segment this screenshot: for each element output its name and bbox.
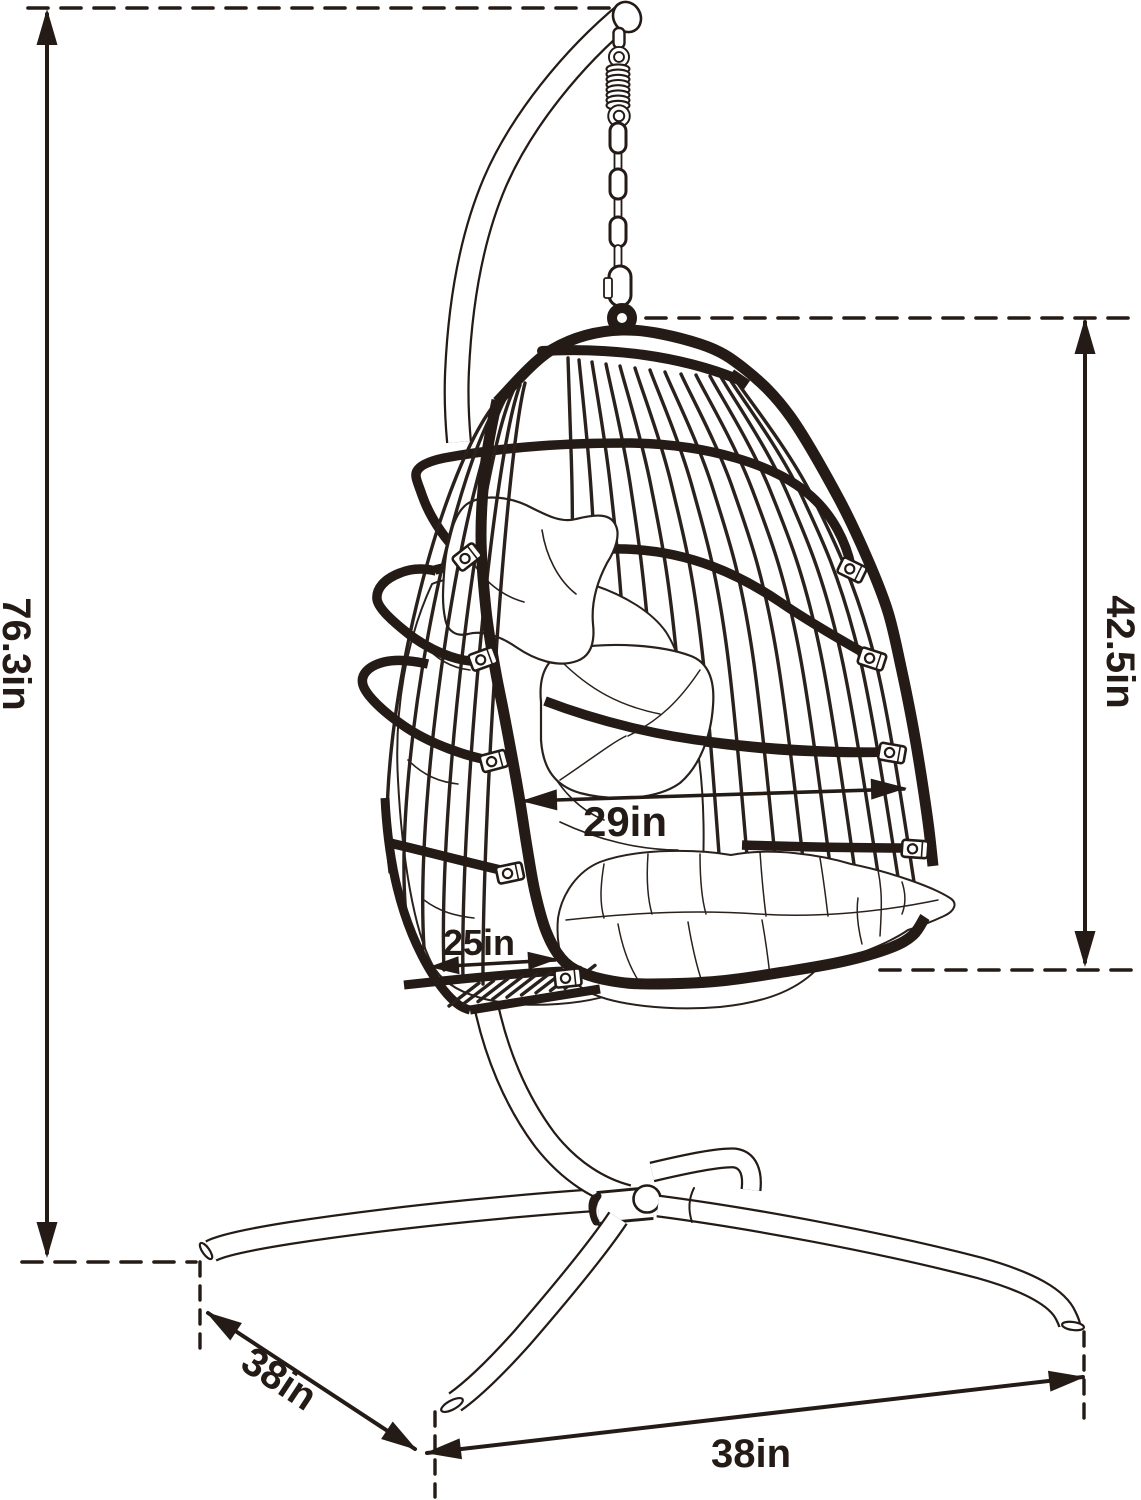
svg-text:38in: 38in (234, 1339, 325, 1420)
svg-text:42.5in: 42.5in (1098, 595, 1141, 708)
svg-text:25in: 25in (443, 922, 515, 963)
svg-text:76.3in: 76.3in (0, 597, 38, 710)
svg-text:29in: 29in (583, 798, 667, 845)
svg-text:38in: 38in (711, 1432, 791, 1476)
